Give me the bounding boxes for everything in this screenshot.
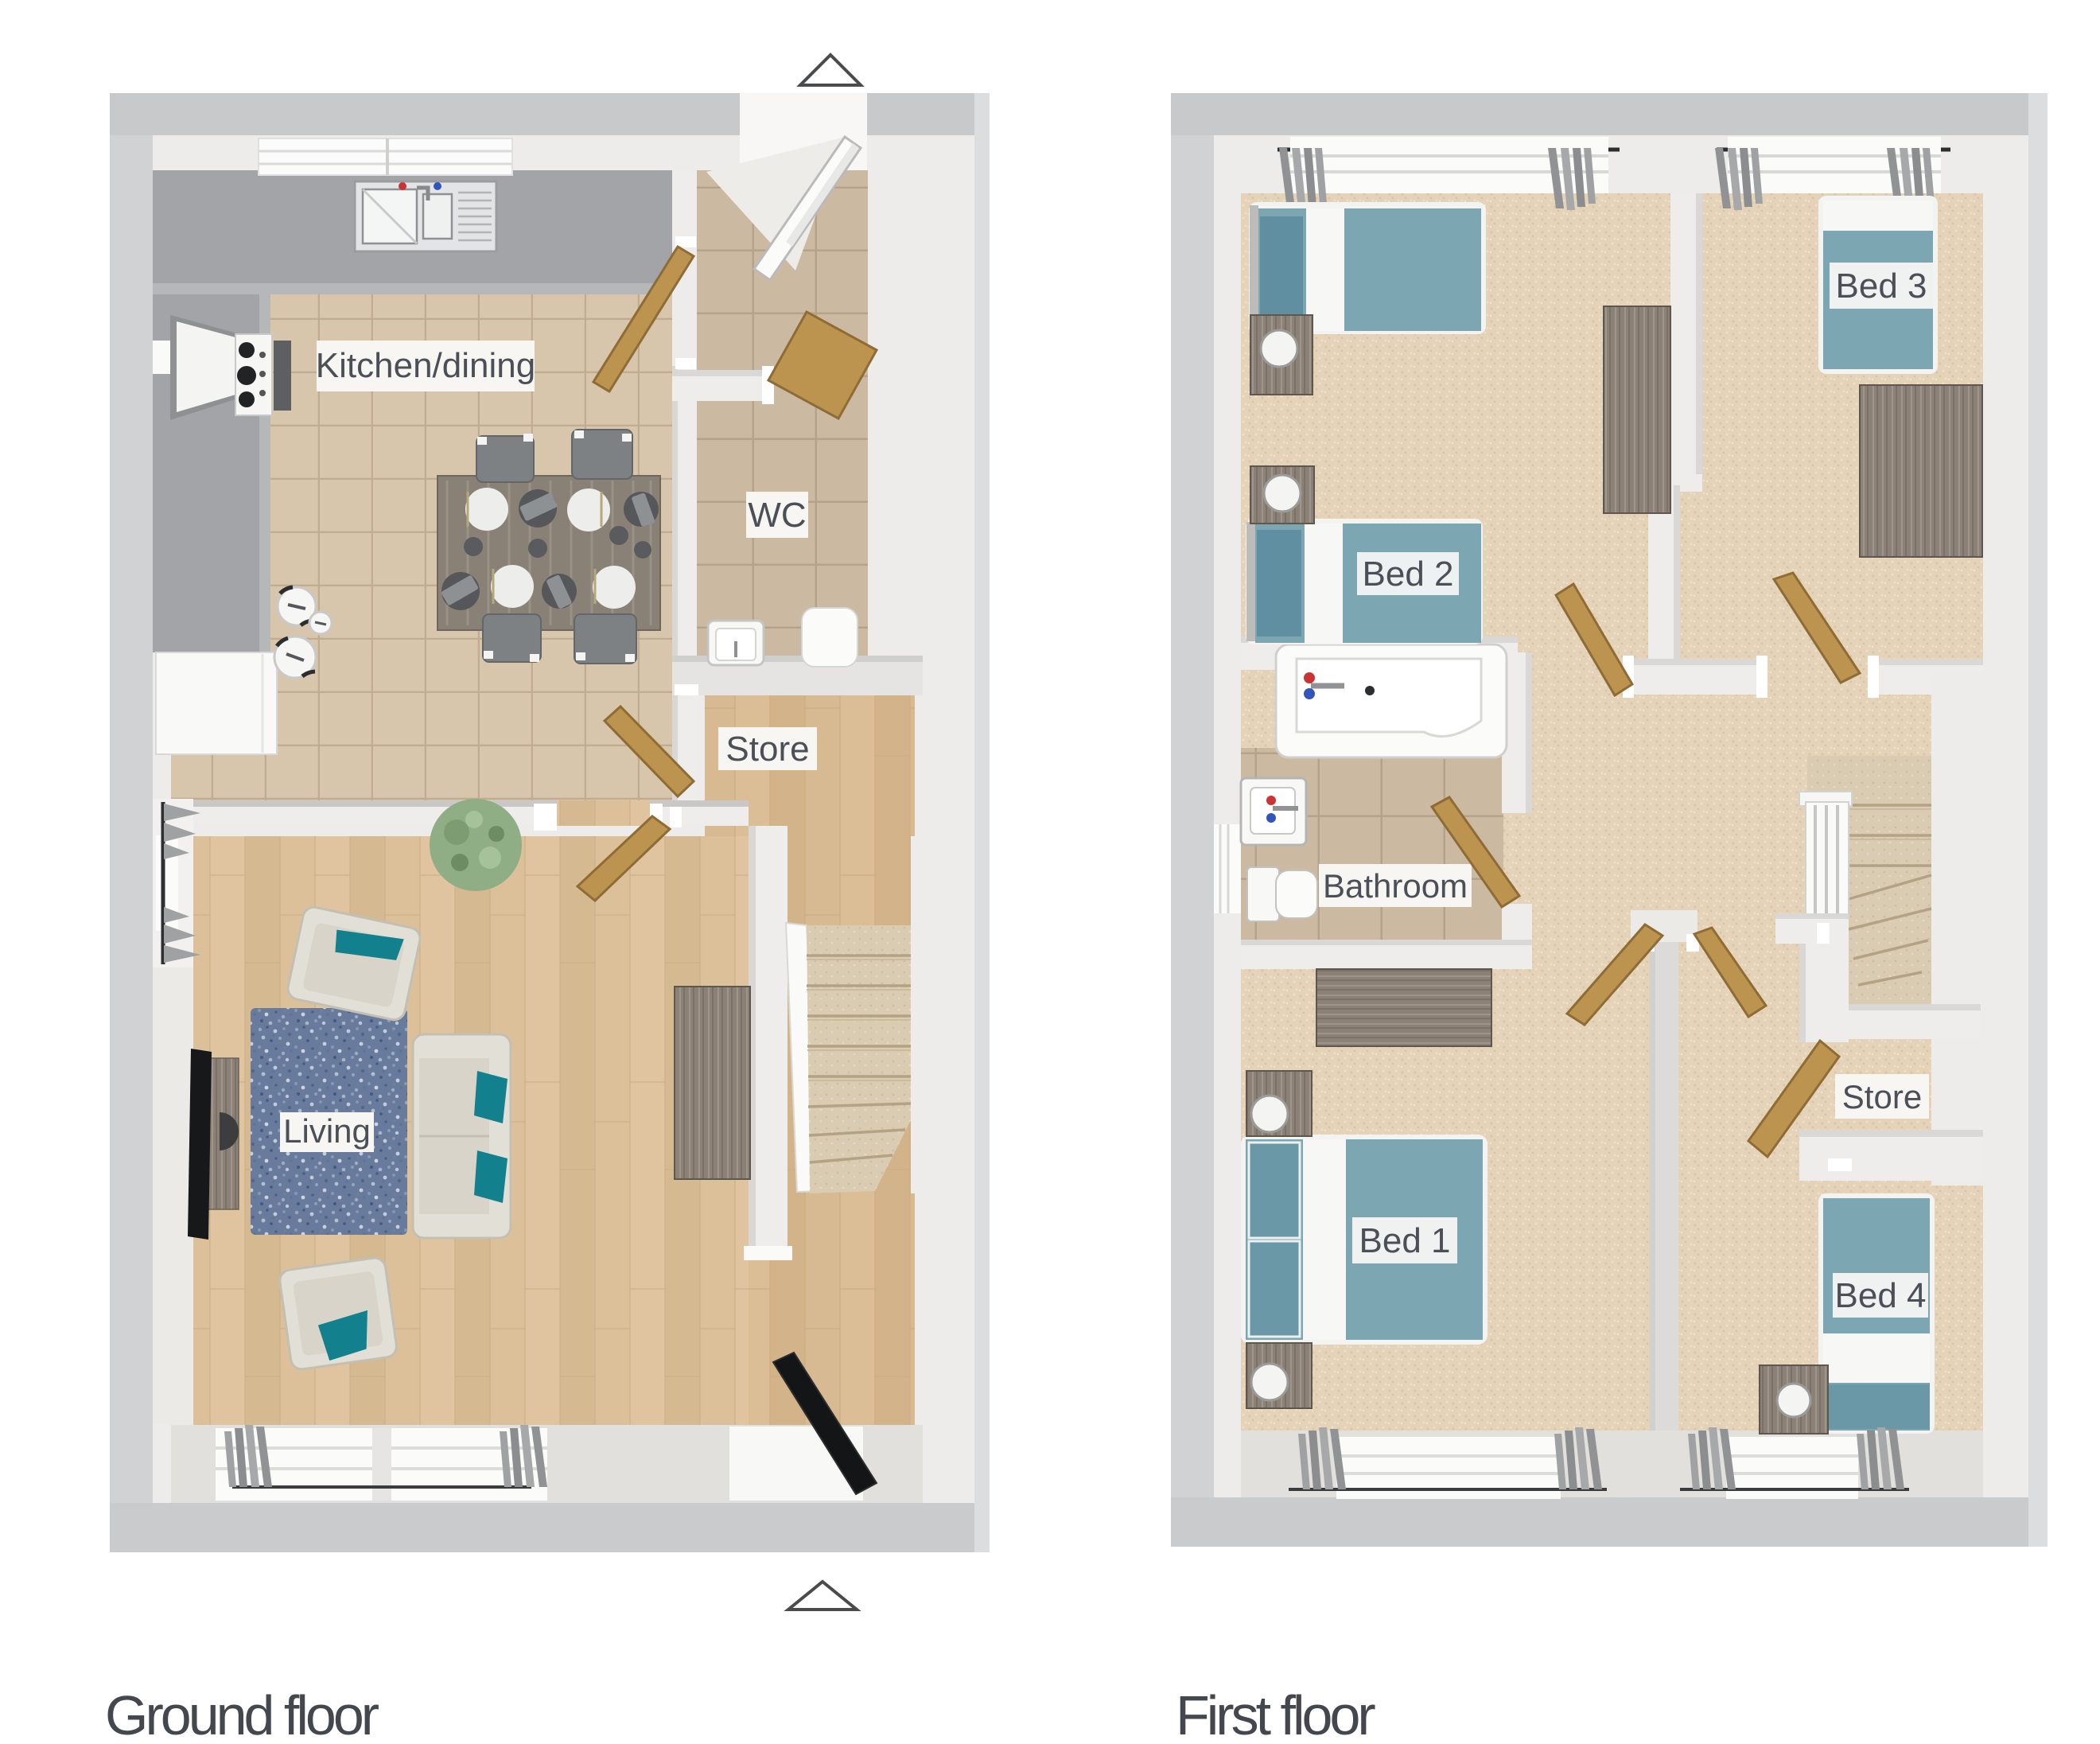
svg-text:Bed 4: Bed 4: [1835, 1276, 1927, 1315]
svg-text:Store: Store: [1842, 1078, 1922, 1115]
svg-text:First floor: First floor: [1176, 1684, 1375, 1744]
svg-text:Bed 3: Bed 3: [1836, 267, 1927, 306]
svg-text:Bed 1: Bed 1: [1359, 1221, 1451, 1260]
svg-text:Ground floor: Ground floor: [105, 1684, 379, 1744]
svg-text:Kitchen/dining: Kitchen/dining: [316, 346, 535, 385]
svg-text:WC: WC: [748, 496, 806, 535]
svg-text:Bed 2: Bed 2: [1363, 555, 1454, 594]
svg-text:Store: Store: [725, 730, 809, 769]
svg-text:Bathroom: Bathroom: [1323, 867, 1468, 905]
svg-text:Living: Living: [283, 1112, 371, 1150]
